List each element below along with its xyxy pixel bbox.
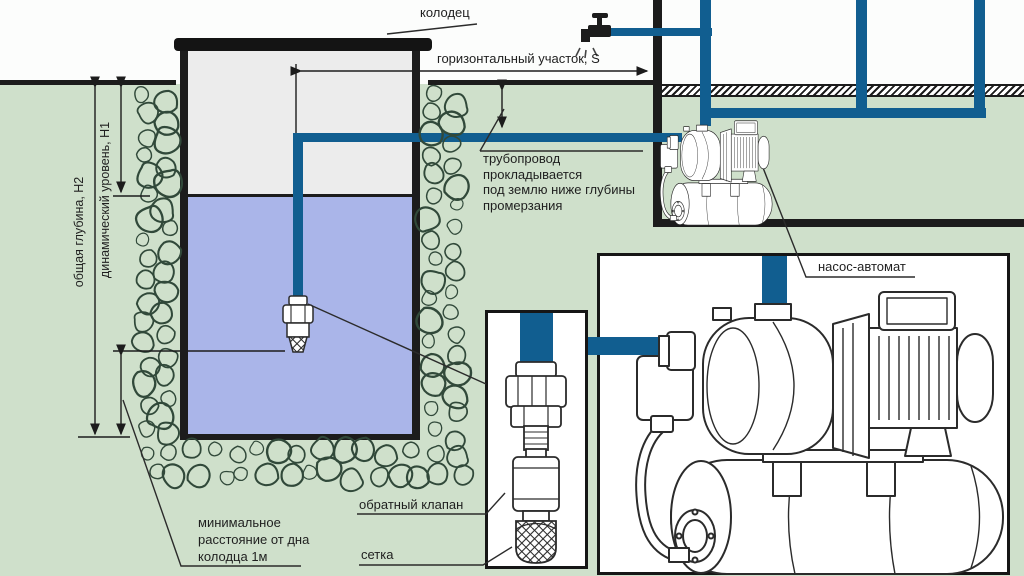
pipe-detail-discharge — [762, 256, 787, 313]
ground-surface-left — [0, 80, 176, 85]
pipe-note-line4: промерзания — [483, 198, 635, 214]
well-pump-diagram: колодец горизонтальный участок, S трубоп… — [0, 0, 1024, 576]
label-well: колодец — [420, 5, 470, 21]
detail-box-pump — [597, 253, 1010, 575]
label-total-depth: общая глубина, Н2 — [79, 232, 189, 246]
label-min-distance: минимальное расстояние от дна колодца 1м — [198, 514, 309, 565]
ground-surface-right — [428, 80, 655, 85]
pipe-note-line3: под землю ниже глубины — [483, 182, 635, 198]
label-horizontal-section: горизонтальный участок, S — [437, 51, 600, 67]
label-dynamic-level: динамический уровень, Н1 — [105, 200, 261, 214]
pipe-branch-2 — [974, 0, 985, 118]
well-bottom — [183, 434, 417, 440]
min-distance-line2: расстояние от дна — [198, 531, 309, 548]
house-floor-hatch — [662, 84, 1024, 97]
min-distance-line3: колодца 1м — [198, 548, 309, 565]
well-cap — [174, 38, 432, 51]
pipe-note-line2: прокладывается — [483, 167, 635, 183]
pipe-detail-vertical — [520, 313, 553, 364]
min-distance-line1: минимальное — [198, 514, 309, 531]
label-pump-auto: насос-автомат — [818, 259, 906, 275]
pipe-distribution — [700, 108, 986, 118]
pipe-branch-1 — [856, 0, 867, 118]
label-mesh: сетка — [361, 547, 393, 563]
well-wall-right — [412, 50, 420, 440]
pipe-underground-horizontal — [293, 133, 682, 142]
basement-floor — [653, 219, 1024, 227]
house-interior — [662, 0, 1024, 84]
pipe-to-faucet — [606, 28, 712, 36]
pipe-detail-suction — [588, 337, 674, 355]
label-check-valve: обратный клапан — [359, 497, 463, 513]
pipe-well-drop — [293, 133, 303, 296]
pipe-note-line1: трубопровод — [483, 151, 635, 167]
label-pipe-note: трубопровод прокладывается под землю ниж… — [483, 151, 635, 213]
